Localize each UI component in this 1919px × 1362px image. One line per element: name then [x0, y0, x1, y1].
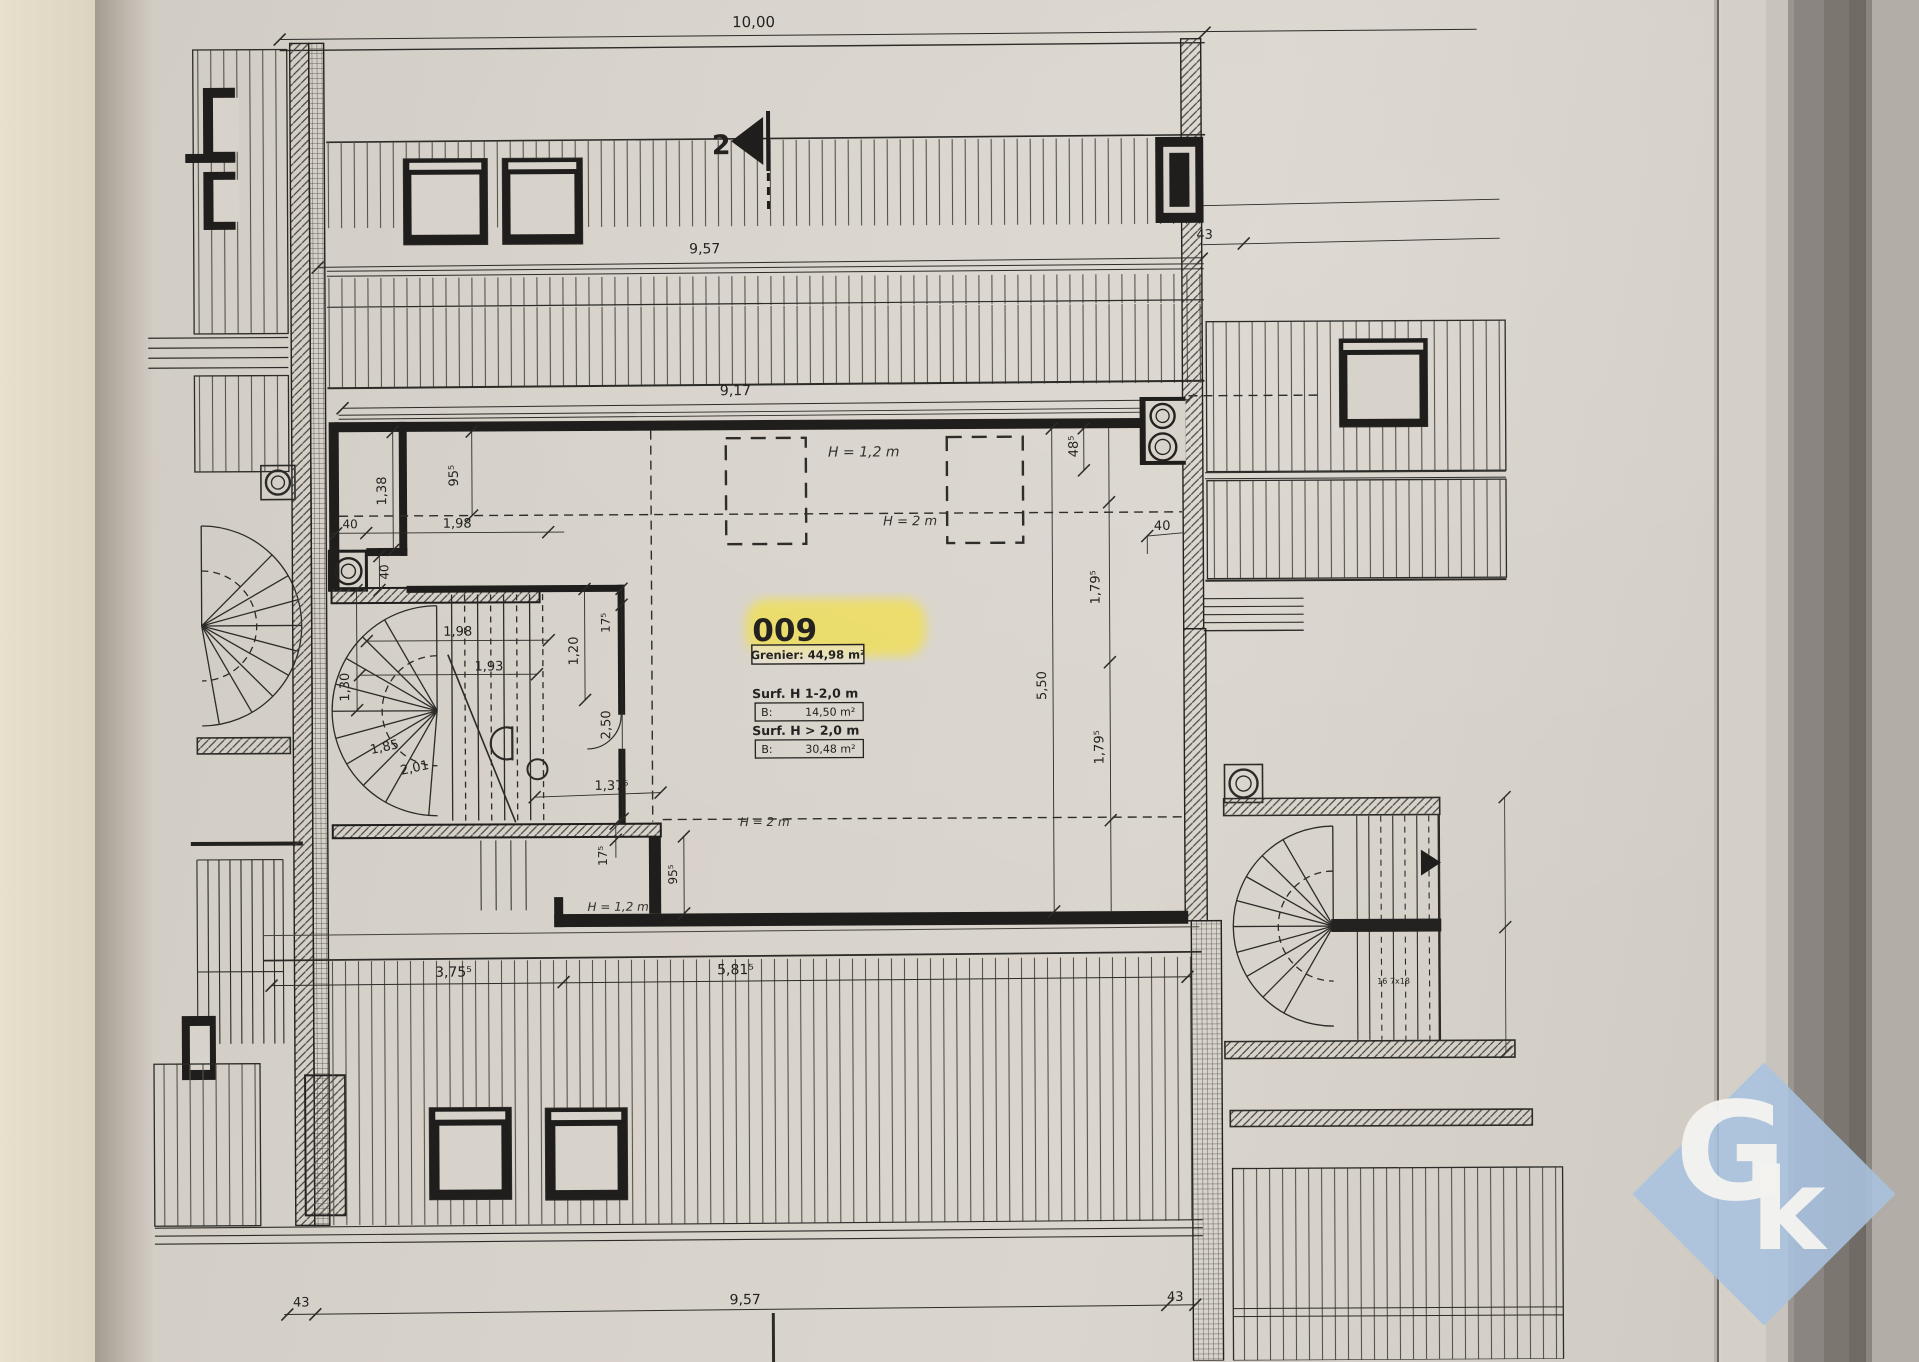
dim-581: 5,81⁵: [717, 962, 754, 978]
floor-plan-drawing: 2 10,00 9,57 43 9,17: [0, 0, 1919, 1362]
photographed-floor-plan: 2 10,00 9,57 43 9,17: [0, 0, 1919, 1362]
dim-9-57-top: 9,57: [689, 241, 720, 257]
dim-43-footer-right: 43: [1167, 1290, 1184, 1305]
dim-130: 1,30: [338, 673, 353, 702]
height-label-h2-bottom: H = 2 m: [740, 815, 790, 829]
surface-row-prefix: B:: [761, 706, 772, 719]
height-label-h2-top: H = 2 m: [883, 514, 937, 529]
dim-955-a: 95⁵: [447, 465, 462, 487]
dim-175-b: 17⁵: [596, 846, 610, 866]
dim-175-a: 17⁵: [599, 613, 613, 633]
neighbour-spiral-stair: [201, 525, 302, 726]
right-roof-window-icon: [1339, 339, 1427, 427]
room-category: Grenier: 44,98 m²: [751, 647, 866, 662]
stair-step-note: 16 7x18: [1377, 977, 1410, 986]
room-number: 009: [752, 613, 817, 649]
room-009-walls: [261, 397, 1200, 936]
dim-198-a: 1,98: [443, 517, 472, 532]
skylight-dashed-outline: [947, 437, 1024, 543]
chimney-block-icon: [1155, 137, 1203, 223]
dim-185: 1,85: [369, 737, 400, 758]
vent-pipe-icon: [1224, 764, 1262, 802]
dim-1375: 1,37⁵: [594, 779, 628, 794]
right-neighbour-unit: 16 7x18: [1188, 320, 1563, 1361]
dim-40-a: 40: [342, 517, 357, 531]
top-roof-band: [280, 43, 1207, 389]
footer-dimensions: 43 9,57 43: [281, 1290, 1201, 1362]
dim-179-a: 1,79⁵: [1088, 570, 1103, 604]
dim-201: 2,01: [399, 758, 430, 779]
surface-row-prefix: B:: [761, 743, 772, 756]
surface-row-area: 14,50 m²: [805, 706, 855, 719]
surface-row-area: 30,48 m²: [805, 743, 855, 756]
dim-48: 48⁵: [1067, 435, 1082, 457]
party-wall-left: [290, 43, 330, 1225]
dim-250: 2,50: [599, 710, 614, 739]
surface-row-label: Surf. H 1-2,0 m: [752, 686, 858, 702]
dim-120: 1,20: [567, 637, 582, 666]
section-marker-number: 2: [712, 130, 731, 161]
dim-10-00: 10,00: [732, 13, 775, 31]
left-neighbour-unit: [147, 49, 305, 1226]
height-label-h12-bottom: H = 1,2 m: [587, 900, 648, 914]
dim-955-b: 95⁵: [666, 864, 680, 884]
gk-logo-watermark: G k: [1633, 1063, 1895, 1325]
dim-138: 1,38: [375, 477, 390, 506]
dim-43-footer-left: 43: [293, 1295, 310, 1310]
gk-logo-letter-k: k: [1751, 1155, 1825, 1267]
dim-193: 1,93: [474, 659, 503, 674]
dim-40-right: 40: [1154, 519, 1171, 534]
dim-957-footer: 9,57: [730, 1292, 761, 1308]
dim-179-b: 1,79⁵: [1092, 730, 1107, 764]
right-spiral-stair: [1233, 825, 1442, 1026]
toilet-icon: [491, 726, 513, 760]
dim-9-17: 9,17: [720, 383, 751, 399]
interior-dimensions: 1,79⁵ 1,79⁵ 5,50 48⁵ 40 1,38 95⁵: [329, 422, 1185, 921]
dim-40-b: 40: [377, 564, 391, 579]
skylight-dashed-outline: [726, 438, 807, 544]
height-label-h12-top: H = 1,2 m: [828, 444, 900, 460]
surface-row-label: Surf. H > 2,0 m: [752, 723, 859, 739]
room-label-group: 009 Grenier: 44,98 m² Surf. H 1-2,0 m B:…: [746, 598, 927, 758]
dim-550: 5,50: [1035, 671, 1050, 700]
neighbour-lower-roof: [154, 1064, 261, 1227]
dim-198-b: 1,98: [443, 625, 472, 640]
neighbour-wall-band: [197, 738, 290, 754]
dim-375: 3,75⁵: [435, 965, 472, 981]
